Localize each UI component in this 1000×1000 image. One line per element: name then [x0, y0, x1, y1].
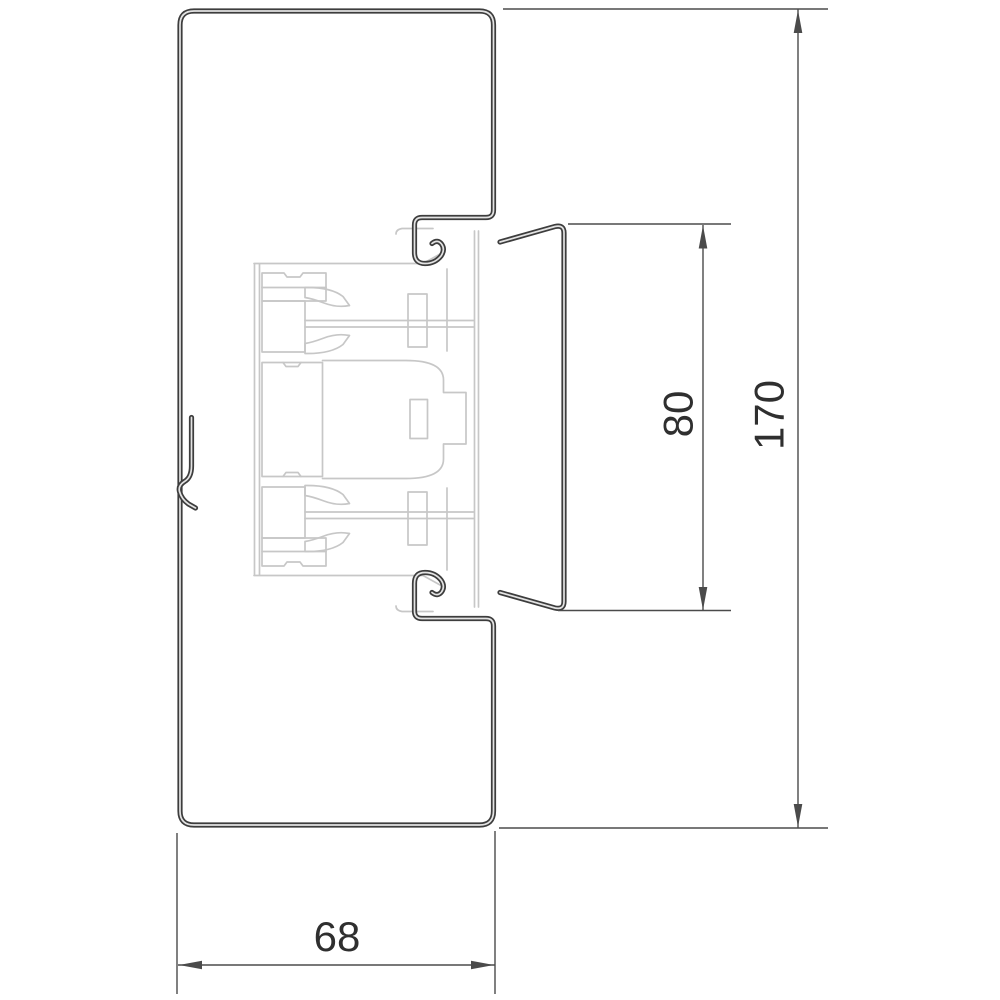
device-claw-frame-top	[262, 301, 305, 352]
cover-outline	[500, 226, 564, 608]
trunking-profile	[179, 11, 493, 825]
dimension-label-80: 80	[655, 391, 702, 438]
profile-outline	[180, 11, 494, 825]
arrowhead-right	[471, 961, 494, 970]
device-body-window	[410, 400, 428, 439]
cover-outline-core	[500, 226, 564, 608]
arrowhead-up	[794, 10, 803, 33]
device-claw-top-upper	[305, 287, 350, 306]
dimension-label-170: 170	[746, 380, 793, 450]
dimension-label-68: 68	[314, 913, 361, 960]
technical-drawing-page: 80 170 68	[0, 0, 1000, 1000]
arrowhead-left	[179, 961, 202, 970]
dimension-depth-68: 68	[177, 831, 495, 994]
arrowhead-down	[699, 587, 708, 610]
device-claw-bottom-upper	[305, 485, 350, 504]
arrowhead-down	[794, 804, 803, 827]
device-insert	[254, 229, 479, 612]
device-mid-column	[262, 363, 323, 477]
device-claw-bottom-lower	[305, 533, 350, 552]
profile-outline-core	[180, 11, 494, 825]
arrowhead-up	[699, 226, 708, 249]
technical-drawing-canvas: 80 170 68	[0, 0, 1000, 1000]
dimension-opening-80: 80	[558, 224, 731, 611]
device-claw-frame-bottom	[262, 487, 305, 538]
cover-profile	[500, 226, 564, 608]
device-body	[323, 361, 467, 479]
device-claw-top-lower	[305, 335, 350, 354]
